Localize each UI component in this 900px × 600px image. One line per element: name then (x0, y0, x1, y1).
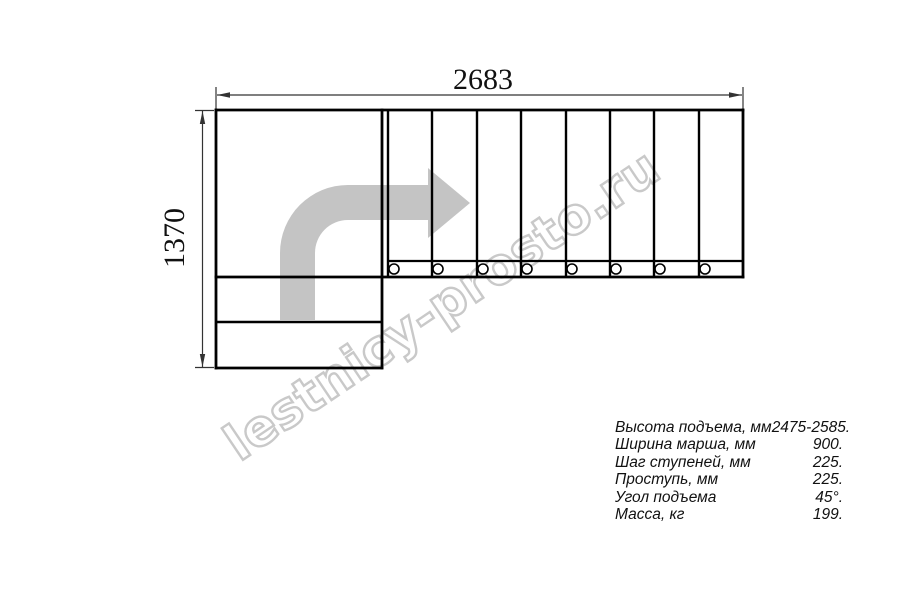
spec-row-mass: Масса, кг 199. (615, 506, 843, 523)
spec-row-climb-angle: Угол подъема 45°. (615, 489, 843, 506)
left-dimension-arrowhead-bottom (200, 354, 205, 367)
spec-row-step-pitch: Шаг ступеней, мм 225. (615, 454, 843, 471)
spec-value: 900. (813, 436, 843, 453)
spec-value: 225. (813, 454, 843, 471)
tread-mount-hole-2 (478, 264, 488, 274)
spec-label: Ширина марша, мм (615, 436, 756, 453)
left-dimension-arrowhead-top (200, 111, 205, 124)
spec-value: 199. (813, 506, 843, 523)
height-dimension-label: 1370 (158, 208, 191, 268)
spec-table: Высота подъема, мм 2475-2585. Ширина мар… (615, 419, 843, 523)
spec-label: Угол подъема (615, 489, 716, 506)
spec-label: Шаг ступеней, мм (615, 454, 751, 471)
spec-value: 2475-2585. (772, 419, 850, 436)
spec-label: Масса, кг (615, 506, 684, 523)
tread-mount-hole-6 (655, 264, 665, 274)
width-dimension-label: 2683 (453, 63, 513, 96)
top-dimension-arrowhead-left (217, 92, 230, 97)
spec-value: 225. (813, 471, 843, 488)
spec-row-tread-depth: Проступь, мм 225. (615, 471, 843, 488)
spec-label: Проступь, мм (615, 471, 718, 488)
tread-mount-hole-4 (567, 264, 577, 274)
spec-row-height: Высота подъема, мм 2475-2585. (615, 419, 843, 436)
tread-mount-hole-1 (433, 264, 443, 274)
spec-value: 45°. (815, 489, 843, 506)
stair-plan-page: lestnicy-prosto.ru 2683 1370 (0, 0, 900, 600)
direction-arrow (280, 168, 470, 320)
tread-mount-hole-0 (389, 264, 399, 274)
spec-row-flight-width: Ширина марша, мм 900. (615, 436, 843, 453)
top-dimension-arrowhead-right (729, 92, 742, 97)
spec-label: Высота подъема, мм (615, 419, 772, 436)
tread-mount-hole-5 (611, 264, 621, 274)
tread-mount-hole-7 (700, 264, 710, 274)
tread-mount-hole-3 (522, 264, 532, 274)
